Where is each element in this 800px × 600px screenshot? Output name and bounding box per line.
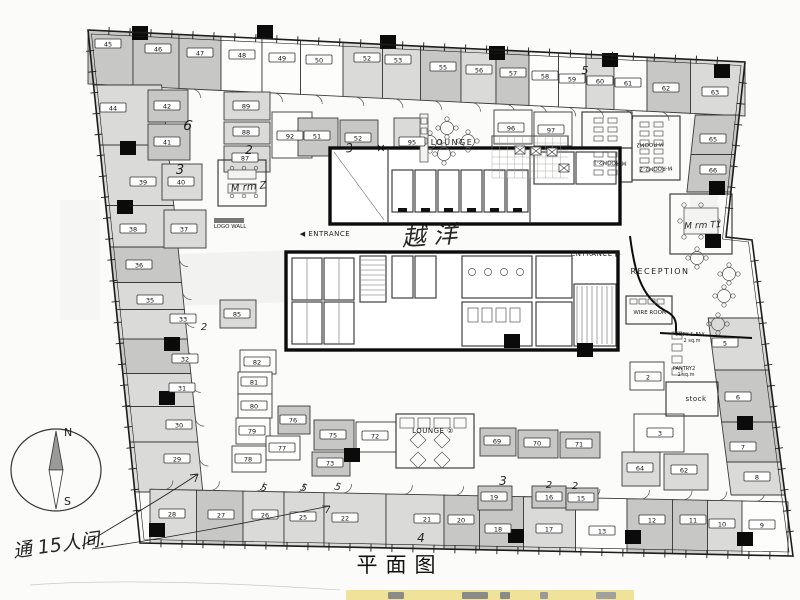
room-48 bbox=[221, 36, 262, 92]
room-tag-85: 85 bbox=[224, 309, 250, 319]
svg-text:10: 10 bbox=[718, 521, 726, 529]
room-tag-8: 8 bbox=[744, 472, 770, 482]
svg-text:89: 89 bbox=[242, 103, 250, 111]
room-tag-31: 31 bbox=[169, 383, 195, 393]
structural-column bbox=[380, 35, 396, 49]
room-tag-61: 61 bbox=[615, 78, 641, 88]
room-tag-88: 88 bbox=[233, 127, 259, 137]
room-tag-26: 26 bbox=[252, 510, 278, 520]
room-tag-81: 81 bbox=[241, 377, 267, 387]
svg-text:18: 18 bbox=[494, 526, 502, 534]
svg-text:9: 9 bbox=[760, 522, 764, 530]
svg-text:88: 88 bbox=[242, 129, 250, 137]
room-tag-97: 97 bbox=[538, 125, 564, 135]
label-logo-wall: LOGO WALL bbox=[214, 224, 248, 230]
room-tag-36: 36 bbox=[126, 260, 152, 270]
svg-text:92: 92 bbox=[286, 133, 294, 141]
label-m-room2-2: M-ROOM2-2 bbox=[639, 164, 672, 171]
room-tag-46: 46 bbox=[145, 44, 171, 54]
room-53 bbox=[383, 44, 421, 100]
room-tag-11: 11 bbox=[680, 515, 706, 525]
svg-text:28: 28 bbox=[168, 511, 176, 519]
handwritten-note: 3 bbox=[499, 474, 507, 488]
room-tag-40: 40 bbox=[168, 177, 194, 187]
handwritten-note: 通 15人间. bbox=[11, 528, 106, 563]
svg-text:12: 12 bbox=[648, 517, 656, 525]
svg-text:49: 49 bbox=[278, 55, 286, 63]
structural-column bbox=[709, 181, 725, 195]
elevator-core bbox=[286, 148, 620, 350]
label-1-sq-m: 1 sq.m bbox=[677, 372, 694, 378]
handwritten-note: 2 bbox=[201, 322, 207, 333]
room-tag-92: 92 bbox=[277, 131, 303, 141]
compass-rose: N S bbox=[11, 426, 101, 511]
svg-text:48: 48 bbox=[238, 52, 246, 60]
room-tag-62: 62 bbox=[653, 83, 679, 93]
room-tag-45: 45 bbox=[95, 39, 121, 49]
label-reception: RECEPTION bbox=[630, 267, 689, 276]
room-tag-32: 32 bbox=[172, 354, 198, 364]
room-tag-29: 29 bbox=[164, 454, 190, 464]
svg-text:27: 27 bbox=[217, 512, 225, 520]
structural-column bbox=[577, 343, 593, 357]
room-tag-18: 18 bbox=[485, 524, 511, 534]
handwritten-note: 2 bbox=[572, 481, 578, 492]
svg-text:39: 39 bbox=[139, 179, 147, 187]
svg-text:79: 79 bbox=[248, 428, 256, 436]
svg-text:32: 32 bbox=[181, 356, 189, 364]
room-55 bbox=[421, 46, 462, 102]
svg-text:46: 46 bbox=[154, 46, 162, 54]
room-tag-42: 42 bbox=[154, 101, 180, 111]
room-tag-22: 22 bbox=[332, 513, 358, 523]
room-tag-28: 28 bbox=[159, 509, 185, 519]
svg-text:52: 52 bbox=[363, 55, 371, 63]
svg-text:78: 78 bbox=[244, 456, 252, 464]
svg-text:7: 7 bbox=[741, 444, 745, 452]
svg-text:21: 21 bbox=[423, 516, 431, 524]
room-11 bbox=[673, 500, 708, 555]
label-2-sq-m: 2 sq.m bbox=[683, 338, 700, 344]
handwritten-note: 5 bbox=[333, 481, 342, 493]
svg-text:61: 61 bbox=[624, 80, 632, 88]
room-tag-48: 48 bbox=[229, 50, 255, 60]
meeting-z-table bbox=[228, 170, 256, 179]
room-tag-65: 65 bbox=[700, 134, 726, 144]
handwritten-note: 6 bbox=[182, 117, 194, 134]
structural-column bbox=[737, 416, 753, 430]
label-m-room2-1: M-ROOM2-1 bbox=[593, 158, 626, 165]
svg-text:66: 66 bbox=[709, 167, 717, 175]
room-tag-69: 69 bbox=[484, 436, 510, 446]
svg-text:72: 72 bbox=[371, 433, 379, 441]
handwritten-note: ✕ bbox=[376, 142, 385, 155]
room-tag-80: 80 bbox=[241, 401, 267, 411]
svg-text:13: 13 bbox=[598, 528, 606, 536]
svg-text:42: 42 bbox=[163, 103, 171, 111]
structural-column bbox=[120, 141, 136, 155]
handwritten-note: M rm Z bbox=[230, 180, 268, 195]
room-tag-35: 35 bbox=[137, 295, 163, 305]
structural-column bbox=[149, 523, 165, 537]
room-tag-89: 89 bbox=[233, 101, 259, 111]
svg-text:69: 69 bbox=[493, 438, 501, 446]
label-lounge: LOUNGE bbox=[431, 138, 474, 147]
room-47 bbox=[179, 34, 221, 90]
structural-column bbox=[159, 391, 175, 405]
svg-text:36: 36 bbox=[135, 262, 143, 270]
room-tag-76: 76 bbox=[280, 415, 306, 425]
room-tag-64: 64 bbox=[627, 463, 653, 473]
svg-text:11: 11 bbox=[689, 517, 697, 525]
room-tag-73: 73 bbox=[317, 458, 343, 468]
label--entrance: ◀ ENTRANCE bbox=[300, 230, 350, 238]
svg-text:47: 47 bbox=[196, 50, 204, 58]
structural-column bbox=[625, 530, 641, 544]
compass-needle-south bbox=[49, 470, 63, 509]
svg-text:70: 70 bbox=[533, 440, 541, 448]
svg-text:55: 55 bbox=[439, 64, 447, 72]
room-tag-21: 21 bbox=[414, 514, 440, 524]
svg-text:58: 58 bbox=[541, 73, 549, 81]
svg-text:17: 17 bbox=[545, 526, 553, 534]
room-45 bbox=[88, 30, 133, 86]
room-tag-39: 39 bbox=[130, 177, 156, 187]
svg-text:65: 65 bbox=[709, 136, 717, 144]
svg-text:76: 76 bbox=[289, 417, 297, 425]
room-tag-56: 56 bbox=[466, 65, 492, 75]
handwritten-note: 3 bbox=[176, 163, 184, 178]
structural-column bbox=[714, 64, 730, 78]
svg-text:41: 41 bbox=[163, 139, 171, 147]
label-lounge-: LOUNGE ② bbox=[412, 427, 454, 435]
room-tag-16: 16 bbox=[536, 492, 562, 502]
structural-column bbox=[117, 200, 133, 214]
room-tag-60: 60 bbox=[587, 76, 613, 86]
structural-column bbox=[504, 334, 520, 348]
svg-text:19: 19 bbox=[490, 494, 498, 502]
svg-text:25: 25 bbox=[299, 514, 307, 522]
svg-text:64: 64 bbox=[636, 465, 644, 473]
structural-column bbox=[164, 337, 180, 351]
handwritten-note: 5 bbox=[582, 64, 589, 77]
label-m-room2: M-ROOM2 bbox=[636, 141, 664, 148]
room-tag-49: 49 bbox=[269, 53, 295, 63]
room-49 bbox=[262, 38, 301, 94]
room-29 bbox=[130, 442, 203, 492]
handwritten-note: 2 bbox=[245, 143, 253, 157]
svg-text:22: 22 bbox=[341, 515, 349, 523]
svg-text:97: 97 bbox=[547, 127, 555, 135]
room-12 bbox=[627, 499, 673, 554]
svg-text:40: 40 bbox=[177, 179, 185, 187]
room-tag-2: 2 bbox=[635, 372, 661, 382]
room-tag-79: 79 bbox=[239, 426, 265, 436]
svg-text:15: 15 bbox=[577, 495, 585, 503]
room-tag-62: 62 bbox=[671, 465, 697, 475]
svg-text:50: 50 bbox=[315, 57, 323, 65]
svg-text:56: 56 bbox=[475, 67, 483, 75]
handwritten-note: M rm T1 bbox=[684, 220, 722, 232]
svg-text:52: 52 bbox=[354, 135, 362, 143]
svg-text:59: 59 bbox=[568, 76, 576, 84]
svg-text:3: 3 bbox=[658, 430, 662, 438]
structural-column bbox=[705, 234, 721, 248]
svg-text:96: 96 bbox=[507, 125, 515, 133]
svg-text:8: 8 bbox=[755, 474, 759, 482]
room-tag-78: 78 bbox=[235, 454, 261, 464]
svg-text:81: 81 bbox=[250, 379, 258, 387]
svg-text:80: 80 bbox=[250, 403, 258, 411]
svg-text:44: 44 bbox=[109, 105, 117, 113]
room-tag-75: 75 bbox=[320, 430, 346, 440]
handwritten-note: 4 bbox=[417, 531, 425, 545]
room-tag-17: 17 bbox=[536, 524, 562, 534]
room-tag-51: 51 bbox=[304, 131, 330, 141]
room-tag-66: 66 bbox=[700, 165, 726, 175]
compass-south-label: S bbox=[64, 495, 71, 508]
handwritten-note: 越 洋 bbox=[401, 220, 461, 252]
svg-text:53: 53 bbox=[394, 57, 402, 65]
svg-text:60: 60 bbox=[596, 78, 604, 86]
structural-column bbox=[344, 448, 360, 462]
svg-text:63: 63 bbox=[711, 89, 719, 97]
svg-text:31: 31 bbox=[178, 385, 186, 393]
svg-text:20: 20 bbox=[457, 517, 465, 525]
room-50 bbox=[301, 40, 344, 96]
room-tag-82: 82 bbox=[244, 357, 270, 367]
svg-text:6: 6 bbox=[736, 394, 740, 402]
structural-column bbox=[737, 532, 753, 546]
svg-text:75: 75 bbox=[329, 432, 337, 440]
room-tag-47: 47 bbox=[187, 48, 213, 58]
svg-text:29: 29 bbox=[173, 456, 181, 464]
svg-text:5: 5 bbox=[723, 340, 727, 348]
svg-text:85: 85 bbox=[233, 311, 241, 319]
room-tag-53: 53 bbox=[385, 55, 411, 65]
room-tag-63: 63 bbox=[702, 87, 728, 97]
lower-core-block bbox=[286, 252, 618, 350]
svg-text:16: 16 bbox=[545, 494, 553, 502]
svg-text:71: 71 bbox=[575, 441, 583, 449]
handwritten-note: 2 bbox=[546, 480, 552, 491]
room-tag-10: 10 bbox=[709, 519, 735, 529]
floor-plan-svg: 4546474849505253555657585960616263443938… bbox=[0, 0, 800, 600]
room-tag-38: 38 bbox=[120, 224, 146, 234]
compass-needle-north bbox=[49, 431, 63, 470]
room-tag-30: 30 bbox=[166, 420, 192, 430]
svg-text:37: 37 bbox=[180, 226, 188, 234]
room-tag-5: 5 bbox=[712, 338, 738, 348]
svg-text:38: 38 bbox=[129, 226, 137, 234]
label-wire-room: WIRE ROOM bbox=[633, 310, 667, 316]
svg-text:57: 57 bbox=[509, 70, 517, 78]
room-tag-15: 15 bbox=[568, 493, 594, 503]
room-tag-3: 3 bbox=[647, 428, 673, 438]
room-tag-70: 70 bbox=[524, 438, 550, 448]
structural-column bbox=[257, 25, 273, 39]
label-entrance-: ENTRANCE ▶ bbox=[571, 250, 622, 258]
room-tag-72: 72 bbox=[362, 431, 388, 441]
room-tag-19: 19 bbox=[481, 492, 507, 502]
svg-text:82: 82 bbox=[253, 359, 261, 367]
room-tag-55: 55 bbox=[430, 62, 456, 72]
room-tag-27: 27 bbox=[208, 510, 234, 520]
room-tag-95: 95 bbox=[399, 137, 425, 147]
svg-text:77: 77 bbox=[278, 445, 286, 453]
meeting-room-2-1 bbox=[582, 112, 632, 148]
svg-text:62: 62 bbox=[662, 85, 670, 93]
svg-text:33: 33 bbox=[179, 316, 187, 324]
room-tag-57: 57 bbox=[500, 68, 526, 78]
room-tag-58: 58 bbox=[532, 71, 558, 81]
room-tag-50: 50 bbox=[306, 55, 332, 65]
room-tag-41: 41 bbox=[154, 137, 180, 147]
room-tag-6: 6 bbox=[725, 392, 751, 402]
room-52 bbox=[343, 42, 383, 98]
compass-north-label: N bbox=[64, 426, 72, 439]
room-tag-96: 96 bbox=[498, 123, 524, 133]
svg-text:35: 35 bbox=[146, 297, 154, 305]
structural-column bbox=[489, 46, 505, 60]
room-tag-71: 71 bbox=[566, 439, 592, 449]
label-stock: stock bbox=[685, 395, 707, 403]
svg-text:51: 51 bbox=[313, 133, 321, 141]
room-tag-52: 52 bbox=[354, 53, 380, 63]
room-tag-37: 37 bbox=[171, 224, 197, 234]
room-tag-33: 33 bbox=[170, 314, 196, 324]
scanned-floor-plan-page: 4546474849505253555657585960616263443938… bbox=[0, 0, 800, 600]
logo-wall bbox=[214, 218, 244, 223]
page-title: 平面图 bbox=[357, 553, 444, 577]
room-tag-44: 44 bbox=[100, 103, 126, 113]
svg-text:73: 73 bbox=[326, 460, 334, 468]
svg-text:62: 62 bbox=[680, 467, 688, 475]
svg-text:45: 45 bbox=[104, 41, 112, 49]
svg-text:95: 95 bbox=[408, 139, 416, 147]
room-tag-9: 9 bbox=[749, 520, 775, 530]
room-tag-7: 7 bbox=[730, 442, 756, 452]
svg-text:2: 2 bbox=[646, 374, 650, 382]
room-tag-13: 13 bbox=[589, 526, 615, 536]
room-tag-77: 77 bbox=[269, 443, 295, 453]
room-tag-20: 20 bbox=[448, 515, 474, 525]
room-46 bbox=[133, 32, 179, 88]
caption-highlight bbox=[30, 582, 634, 600]
room-tag-12: 12 bbox=[639, 515, 665, 525]
svg-text:30: 30 bbox=[175, 422, 183, 430]
